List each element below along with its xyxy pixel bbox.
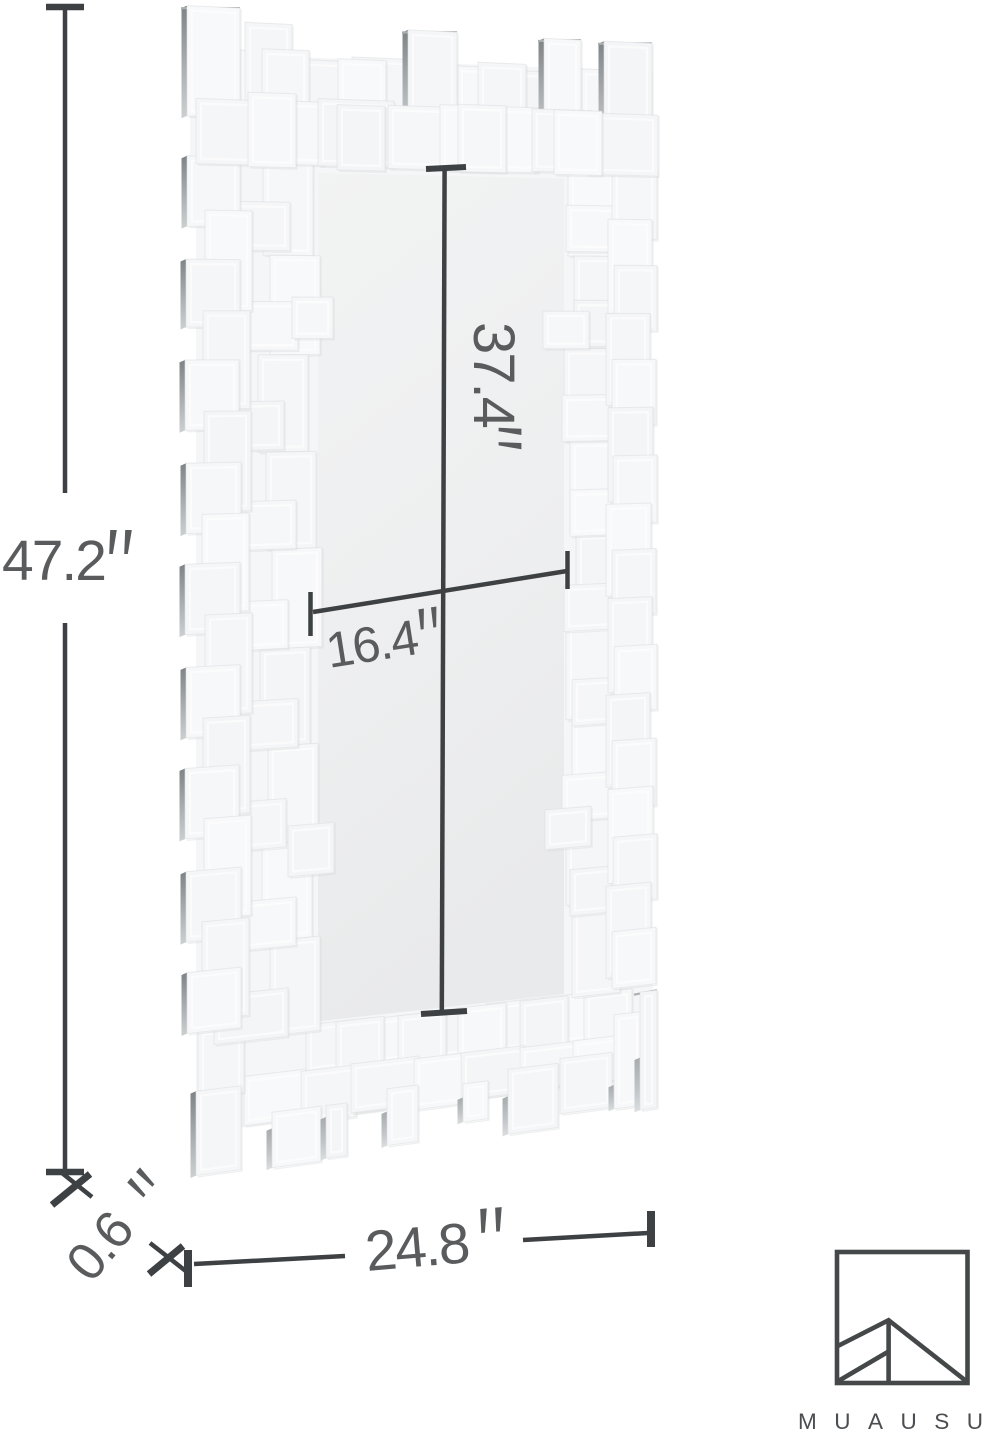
svg-text:37.4: 37.4 xyxy=(461,322,526,428)
svg-text:47.2: 47.2 xyxy=(2,529,105,593)
svg-text:MUAUSU: MUAUSU xyxy=(798,1409,986,1433)
svg-text:24.8: 24.8 xyxy=(363,1211,471,1284)
